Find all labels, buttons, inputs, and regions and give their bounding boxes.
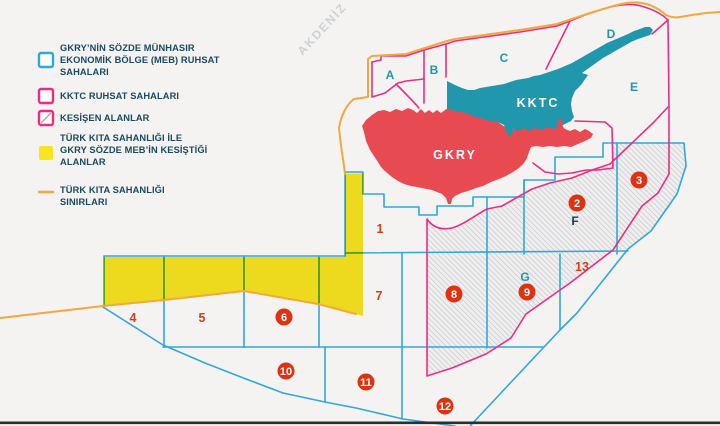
svg-text:KKTC: KKTC: [517, 96, 560, 110]
svg-text:EKONOMİK BÖLGE (MEB) RUHSAT: EKONOMİK BÖLGE (MEB) RUHSAT: [60, 55, 220, 65]
svg-text:TÜRK KITA SAHANLIĞI: TÜRK KITA SAHANLIĞI: [60, 184, 165, 195]
svg-text:2: 2: [574, 198, 580, 210]
svg-text:4: 4: [130, 311, 137, 325]
svg-text:KKTC RUHSAT SAHALARI: KKTC RUHSAT SAHALARI: [60, 91, 179, 101]
svg-text:C: C: [500, 51, 509, 65]
svg-text:A: A: [386, 68, 395, 82]
svg-text:13: 13: [575, 260, 589, 274]
svg-text:10: 10: [280, 366, 292, 378]
svg-text:3: 3: [636, 175, 642, 187]
svg-text:11: 11: [360, 377, 372, 389]
svg-text:F: F: [571, 214, 578, 228]
svg-text:TÜRK KITA SAHANLIĞI İLE: TÜRK KITA SAHANLIĞI İLE: [60, 132, 182, 143]
svg-text:GKRY SÖZDE MEB’İN KESİŞTİĞİ: GKRY SÖZDE MEB’İN KESİŞTİĞİ: [60, 144, 207, 155]
svg-text:7: 7: [376, 289, 383, 303]
svg-text:SINIRLARI: SINIRLARI: [60, 197, 107, 207]
svg-text:ALANLAR: ALANLAR: [60, 157, 106, 167]
svg-text:6: 6: [281, 312, 287, 324]
svg-text:D: D: [607, 27, 616, 41]
svg-text:5: 5: [199, 311, 206, 325]
svg-text:12: 12: [439, 401, 451, 413]
svg-text:SAHALARI: SAHALARI: [60, 67, 109, 77]
svg-text:GKRY: GKRY: [433, 148, 477, 162]
svg-text:G: G: [520, 270, 529, 284]
svg-text:B: B: [430, 63, 439, 77]
svg-text:E: E: [630, 80, 638, 94]
svg-text:GKRY’NİN SÖZDE MÜNHASIR: GKRY’NİN SÖZDE MÜNHASIR: [60, 43, 195, 53]
svg-text:KESİŞEN ALANLAR: KESİŞEN ALANLAR: [60, 113, 150, 123]
svg-text:9: 9: [524, 287, 530, 299]
svg-text:1: 1: [377, 222, 384, 236]
svg-text:8: 8: [451, 289, 457, 301]
